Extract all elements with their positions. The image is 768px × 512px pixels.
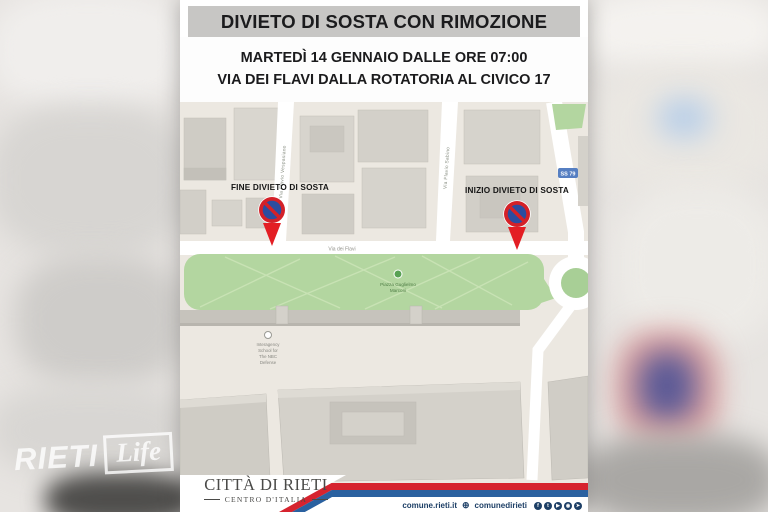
banner-date-line: MARTEDÌ 14 GENNAIO DALLE ORE 07:00 bbox=[241, 48, 528, 69]
watermark-box: Life bbox=[103, 432, 174, 475]
park: Piazza Guglielmo Marconi bbox=[184, 254, 556, 310]
instagram-icon[interactable]: ◉ bbox=[564, 502, 572, 510]
watermark-brand2: Life bbox=[115, 435, 161, 467]
rieti-life-watermark: RIETI Life bbox=[13, 432, 174, 479]
social-icons: f t ▶ ◉ ➤ bbox=[534, 502, 582, 510]
no-parking-sign-icon bbox=[503, 200, 531, 228]
facebook-icon[interactable]: f bbox=[534, 502, 542, 510]
backdrop-blob bbox=[15, 255, 185, 385]
street-main bbox=[180, 241, 588, 255]
banner-subtitle: MARTEDÌ 14 GENNAIO DALLE ORE 07:00 VIA D… bbox=[180, 37, 588, 102]
green-patch bbox=[552, 104, 586, 130]
city-logo-title: CITTÀ DI RIETI bbox=[190, 476, 342, 494]
city-logo-subtitle: CENTRO D'ITALIA bbox=[190, 495, 342, 504]
website-link[interactable]: comune.rieti.it bbox=[402, 501, 457, 510]
park-label-line1: Piazza Guglielmo bbox=[380, 282, 416, 287]
backdrop-blob bbox=[580, 435, 768, 512]
telegram-icon[interactable]: ➤ bbox=[574, 502, 582, 510]
map: Via Flavio Vespasiano Via Flavio Sabino bbox=[180, 102, 588, 512]
twitter-icon[interactable]: t bbox=[544, 502, 552, 510]
map-canvas: Via Flavio Vespasiano Via Flavio Sabino bbox=[180, 102, 588, 512]
watermark-brand: RIETI bbox=[13, 437, 99, 477]
street-main-label: Via dei Flavi bbox=[328, 247, 355, 253]
backdrop-blob-dark bbox=[45, 472, 195, 512]
footer-links: comune.rieti.it ⊕ comunedirieti f t ▶ ◉ … bbox=[402, 501, 582, 510]
no-parking-sign-icon bbox=[258, 196, 286, 224]
backdrop-blob bbox=[580, 0, 768, 70]
marker-fine-label: FINE DIVIETO DI SOSTA bbox=[231, 183, 329, 192]
social-handle[interactable]: comunedirieti bbox=[475, 501, 527, 510]
poi-label-line3: The NBC bbox=[259, 354, 277, 359]
youtube-icon[interactable]: ▶ bbox=[554, 502, 562, 510]
banner-location-line: VIA DEI FLAVI DALLA ROTATORIA AL CIVICO … bbox=[217, 70, 550, 91]
announcement-panel: DIVIETO DI SOSTA CON RIMOZIONE MARTEDÌ 1… bbox=[180, 0, 588, 512]
backdrop-blob-navy bbox=[638, 352, 696, 420]
poi-label-line4: Defense bbox=[260, 360, 277, 365]
globe-icon: ⊕ bbox=[462, 501, 470, 510]
banner-title: DIVIETO DI SOSTA CON RIMOZIONE bbox=[188, 6, 580, 37]
poi-label-line1: Interagency bbox=[257, 342, 281, 347]
backdrop-blob-blue bbox=[658, 98, 710, 138]
route-badge-label: SS 79 bbox=[561, 172, 576, 178]
backdrop-blob bbox=[0, 105, 190, 255]
map-building-edge bbox=[578, 136, 588, 206]
footer-bar: CITTÀ DI RIETI CENTRO D'ITALIA comune.ri… bbox=[180, 475, 588, 512]
park-label-line2: Marconi bbox=[390, 288, 406, 293]
city-logo: CITTÀ DI RIETI CENTRO D'ITALIA bbox=[190, 476, 342, 504]
marker-inizio-label: INIZIO DIVIETO DI SOSTA bbox=[465, 186, 569, 195]
notice-graphic: { "banner": { "title": "DIVIETO DI SOSTA… bbox=[0, 0, 768, 512]
backdrop-blob bbox=[0, 0, 190, 110]
park-tree-icon bbox=[394, 270, 402, 278]
backdrop-blob bbox=[615, 185, 768, 345]
route-badge: SS 79 bbox=[558, 168, 578, 178]
map-buildings-upper-mid bbox=[300, 110, 428, 234]
poi-label-line2: School for bbox=[258, 348, 278, 353]
